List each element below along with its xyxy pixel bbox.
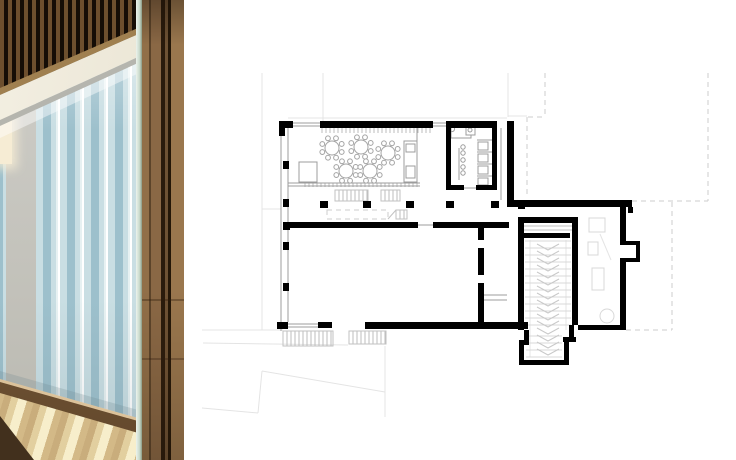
floor-plan-drawing bbox=[0, 0, 736, 460]
page bbox=[0, 0, 736, 460]
